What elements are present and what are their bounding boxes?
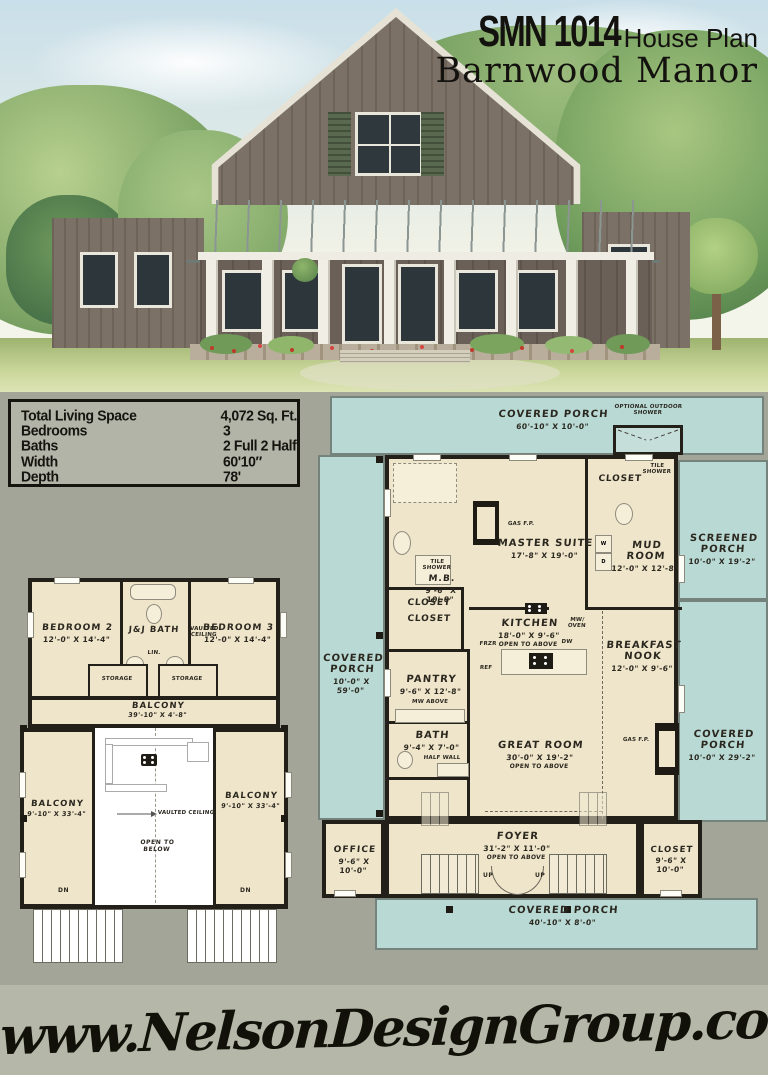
website-link[interactable]: www.NelsonDesignGroup.com [0, 977, 768, 1075]
porch-window [456, 270, 498, 332]
tile-shower-label: TILE SHOWER [418, 559, 455, 572]
flowers [210, 346, 214, 350]
window [413, 454, 441, 461]
dw-label: DW [557, 639, 578, 645]
balcony-right-label: BALCONY9'-10" X 33'-4" [219, 792, 283, 810]
house-plan-flyer: SMN 1014House Plan Barnwood Manor Total … [0, 0, 768, 1075]
stairs-down-left [33, 909, 123, 963]
stairs-upper [421, 792, 449, 826]
left-wing-window [134, 252, 172, 308]
foyer-room: UP UP FOYER31'-2" X 11'-0"OPEN TO ABOVE [385, 820, 640, 898]
porch-column [444, 260, 456, 348]
window [228, 577, 254, 584]
pantry-counter [395, 709, 465, 723]
toilet [393, 531, 411, 555]
balcony-left-label: BALCONY9'-10" X 33'-4" [25, 800, 89, 818]
porch-window [516, 270, 558, 332]
second-floor-bedroom-band: STORAGE STORAGE BEDROOM 212'-0" X 14'-4"… [28, 578, 280, 700]
fireplace-sketch [187, 742, 209, 762]
fireplace [655, 723, 679, 775]
porch-post [376, 810, 383, 817]
plan-type: House Plan [624, 23, 758, 54]
porch-column [262, 260, 274, 348]
porch-column [384, 260, 396, 348]
window [285, 772, 292, 798]
pantry-label: PANTRY9'-6" X 12'-8" [394, 675, 468, 696]
stat-label: Depth [21, 467, 223, 484]
screened-porch [678, 460, 768, 600]
sofa-sketch [105, 744, 113, 784]
bush [545, 336, 593, 354]
vanity [393, 463, 457, 503]
foyer-label: FOYER31'-2" X 11'-0"OPEN TO ABOVE [476, 832, 559, 861]
nook-dashed-line [602, 611, 603, 819]
covered-porch-right [678, 600, 768, 822]
storage-closet: STORAGE [158, 664, 218, 698]
foyer-closet-room: CLOSET9'-6" X 10'-0" [640, 820, 702, 898]
bedroom-3-label: BEDROOM 312'-0" X 14'-4" [197, 624, 279, 644]
window [27, 612, 34, 638]
screened-porch-label: SCREENED PORCH10'-0" X 19'-2" [680, 534, 767, 566]
tile-shower-label: TILE SHOWER [634, 463, 679, 476]
master-bath-label: M.B.9'-6" X 10'-8" [412, 575, 471, 604]
porch-beam [198, 252, 654, 260]
left-wing [52, 218, 204, 348]
stat-row: Width60'10″ [21, 453, 297, 468]
covered-porch-top-label: COVERED PORCH60'-10" X 10'-0" [487, 410, 619, 431]
porch-column [566, 260, 578, 348]
gable-window [355, 112, 423, 176]
window [334, 890, 356, 897]
window [280, 612, 287, 638]
sofa-sketch [105, 738, 193, 746]
main-interior: W D [385, 455, 678, 820]
covered-porch-right-label: COVERED PORCH10'-0" X 29'-2" [680, 730, 767, 762]
second-floor-plan: STORAGE STORAGE BEDROOM 212'-0" X 14'-4"… [18, 575, 290, 965]
half-wall-label: HALF WALL [423, 755, 462, 761]
gas-fp-label: GAS F.P. [501, 521, 542, 527]
wall [585, 459, 588, 609]
main-floor-plan: OPTIONAL OUTDOOR SHOWER COVERED PORCH60'… [318, 392, 768, 962]
balcony-post [281, 725, 288, 732]
jj-bath-label: J&J BATH [128, 626, 181, 635]
tub [130, 584, 176, 600]
gas-fp-label: GAS F.P. [617, 737, 656, 743]
wall [389, 777, 469, 780]
breakfast-nook-label: BREAKFAST NOOK12'-0" X 9'-6" [602, 641, 685, 673]
window [285, 852, 292, 878]
optional-outdoor-shower-label: OPTIONAL OUTDOOR SHOWER [613, 404, 682, 417]
shutter-right [421, 112, 444, 176]
hanging-plant [292, 258, 318, 282]
balcony-right-room: BALCONY9'-10" X 33'-4" [216, 728, 288, 908]
outdoor-shower-pad [613, 425, 683, 455]
bush [200, 334, 252, 354]
left-wing-window [80, 252, 118, 308]
kitchen-closet-label: CLOSET [399, 615, 460, 625]
title-block: SMN 1014House Plan Barnwood Manor [435, 12, 758, 91]
mw-above-label: MW ABOVE [411, 699, 450, 705]
stairs-upper [579, 792, 607, 826]
master-suite-label: MASTER SUITE17'-8" X 19'-0" [484, 539, 606, 560]
sink [437, 763, 469, 777]
wall [585, 607, 682, 610]
up-label: UP [483, 872, 493, 879]
stat-row: Baths2 Full 2 Half [21, 437, 297, 452]
toilet [615, 503, 633, 525]
stairs-left [421, 854, 479, 894]
stat-row: Total Living Space4,072 Sq. Ft. [21, 407, 297, 422]
bath-label: BATH9'-4" X 7'-0" [398, 731, 466, 752]
porch-steps [340, 350, 470, 363]
wall [389, 649, 469, 652]
porch-post [376, 456, 383, 463]
linen-label: LIN. [144, 650, 165, 656]
covered-porch-left-label: COVERED PORCH10'-0" X 59'-0" [318, 654, 386, 695]
front-door [398, 264, 438, 344]
shutter-left [328, 112, 351, 176]
window [19, 852, 26, 878]
range [525, 603, 547, 614]
plan-number: SMN 1014 [478, 8, 620, 57]
up-label: UP [535, 872, 545, 879]
window [509, 454, 537, 461]
window [19, 772, 26, 798]
covered-porch-left [318, 455, 385, 820]
balcony-left-room: BALCONY9'-10" X 33'-4" [20, 728, 92, 908]
bush [606, 334, 650, 354]
ref-label: REF [475, 665, 498, 671]
window [54, 577, 80, 584]
storage-label: STORAGE [94, 676, 141, 682]
dn-label: DN [240, 887, 251, 894]
window [678, 685, 685, 713]
stat-value: 4,072 Sq. Ft. [221, 406, 298, 423]
plan-name: Barnwood Manor [435, 51, 758, 91]
window [384, 489, 391, 517]
stairs-right [549, 854, 607, 894]
open-to-below-area: VAULTED CEILING OPEN TO BELOW [92, 728, 216, 908]
storage-label: STORAGE [164, 676, 211, 682]
great-room-label: GREAT ROOM30'-0" X 19'-2"OPEN TO ABOVE [484, 741, 597, 770]
island-cooktop [529, 653, 553, 669]
dn-label: DN [58, 887, 69, 894]
stats-box: Total Living Space4,072 Sq. Ft. Bedrooms… [8, 399, 300, 487]
balcony-post [20, 725, 27, 732]
office-room: OFFICE9'-6" X 10'-0" [322, 820, 385, 898]
toilet [397, 751, 413, 769]
window [384, 669, 391, 697]
office-label: OFFICE9'-6" X 10'-0" [327, 846, 382, 875]
balcony-post [281, 815, 288, 822]
house-rendering: SMN 1014House Plan Barnwood Manor [0, 0, 768, 392]
vaulted-ceiling-label: VAULTED CEILING [157, 810, 216, 816]
covered-porch-bottom-label: COVERED PORCH40'-10" X 8'-0" [492, 906, 634, 927]
mud-closet-label: CLOSET [591, 475, 650, 485]
porch-window [222, 270, 264, 332]
open-to-below-label: OPEN TO BELOW [126, 840, 187, 854]
stat-row: Depth78' [21, 468, 297, 483]
porch-column [318, 260, 330, 348]
stat-row: Bedrooms3 [21, 422, 297, 437]
window [625, 454, 653, 461]
toilet [146, 604, 162, 624]
door-arc [517, 866, 544, 895]
stat-value: 78' [223, 467, 241, 484]
door-arc [491, 866, 518, 895]
bush [470, 334, 524, 354]
foyer-closet-label: CLOSET9'-6" X 10'-0" [645, 846, 697, 874]
bedroom-2-label: BEDROOM 212'-0" X 14'-4" [37, 624, 117, 644]
window [660, 890, 682, 897]
bush [268, 336, 314, 354]
frzr-label: FRZR [477, 641, 500, 647]
mw-oven-label: MW/ OVEN [562, 617, 591, 630]
balcony-top-label: BALCONY39'-10" X 4'-8" [117, 702, 199, 719]
balcony-top: BALCONY39'-10" X 4'-8" [28, 700, 280, 728]
porch-post [376, 632, 383, 639]
stairs-down-right [187, 909, 277, 963]
sofa-sketch [105, 784, 167, 792]
front-door [342, 264, 382, 344]
mud-room-label: MUD ROOM12'-0" X 12'-8" [610, 541, 683, 573]
storage-closet: STORAGE [88, 664, 148, 698]
table-sketch [141, 754, 157, 766]
porch-post [446, 906, 453, 913]
footer: www.NelsonDesignGroup.com [0, 985, 768, 1075]
